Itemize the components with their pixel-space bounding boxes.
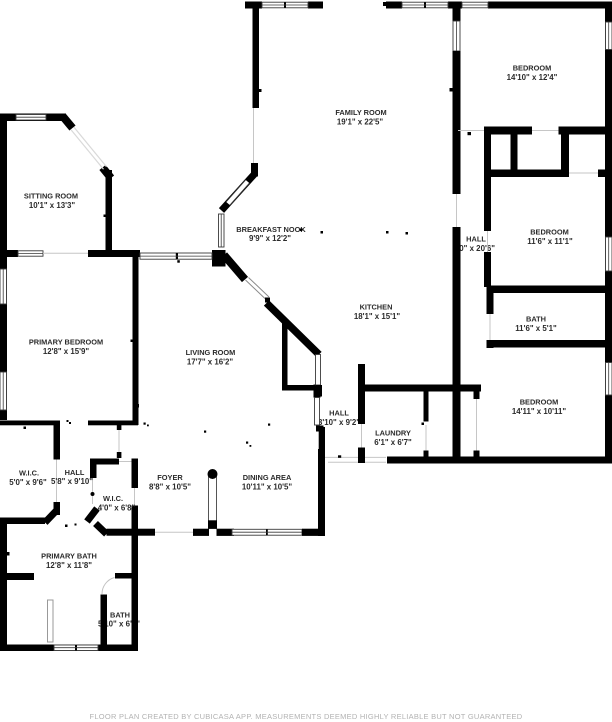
svg-text:17'7" x 16'2": 17'7" x 16'2" (187, 358, 234, 367)
svg-text:LIVING ROOM: LIVING ROOM (186, 348, 236, 357)
svg-text:BEDROOM: BEDROOM (530, 228, 569, 237)
svg-text:BEDROOM: BEDROOM (520, 398, 559, 407)
svg-text:3'10" x 9'2": 3'10" x 9'2" (318, 418, 360, 427)
svg-text:14'11" x 10'11": 14'11" x 10'11" (512, 407, 567, 416)
svg-text:HALL: HALL (329, 409, 349, 418)
svg-text:12'8" x 11'8": 12'8" x 11'8" (46, 561, 92, 570)
svg-text:FAMILY ROOM: FAMILY ROOM (335, 108, 386, 117)
svg-text:5'8" x 9'10": 5'8" x 9'10" (51, 477, 93, 486)
svg-text:BATH: BATH (110, 611, 130, 620)
svg-text:12'8" x 15'9": 12'8" x 15'9" (43, 347, 90, 356)
svg-text:18'1" x 15'1": 18'1" x 15'1" (354, 312, 401, 321)
svg-text:BEDROOM: BEDROOM (513, 64, 552, 73)
svg-text:11'6" x 11'1": 11'6" x 11'1" (527, 237, 573, 246)
svg-text:10'1" x 13'3": 10'1" x 13'3" (29, 201, 76, 210)
svg-text:19'1" x 22'5": 19'1" x 22'5" (337, 118, 384, 127)
svg-text:10'11" x 10'5": 10'11" x 10'5" (242, 483, 293, 492)
svg-text:DINING AREA: DINING AREA (243, 473, 292, 482)
svg-text:14'10" x 12'4": 14'10" x 12'4" (507, 73, 558, 82)
svg-text:8'8" x 10'5": 8'8" x 10'5" (149, 483, 191, 492)
svg-text:PRIMARY BATH: PRIMARY BATH (41, 552, 97, 561)
svg-text:SITTING ROOM: SITTING ROOM (24, 192, 78, 201)
svg-text:BATH: BATH (526, 315, 546, 324)
svg-text:FLOOR PLAN CREATED BY CUBICASA: FLOOR PLAN CREATED BY CUBICASA APP. MEAS… (90, 712, 523, 721)
svg-text:KITCHEN: KITCHEN (360, 303, 393, 312)
svg-text:PRIMARY BEDROOM: PRIMARY BEDROOM (29, 338, 103, 347)
svg-text:LAUNDRY: LAUNDRY (375, 429, 411, 438)
svg-text:HALL: HALL (466, 235, 486, 244)
svg-text:11'6" x 5'1": 11'6" x 5'1" (515, 324, 557, 333)
svg-text:FOYER: FOYER (157, 473, 183, 482)
svg-text:HALL: HALL (65, 468, 85, 477)
svg-text:4'0" x 6'8": 4'0" x 6'8" (98, 504, 136, 513)
svg-text:W.I.C.: W.I.C. (103, 494, 123, 503)
svg-text:W.I.C.: W.I.C. (19, 469, 39, 478)
svg-text:BREAKFAST NOOK: BREAKFAST NOOK (236, 225, 306, 234)
svg-text:5'0" x 9'6": 5'0" x 9'6" (9, 478, 47, 487)
svg-text:6'1" x 6'7": 6'1" x 6'7" (374, 438, 412, 447)
svg-text:9'9" x 12'2": 9'9" x 12'2" (249, 234, 291, 243)
